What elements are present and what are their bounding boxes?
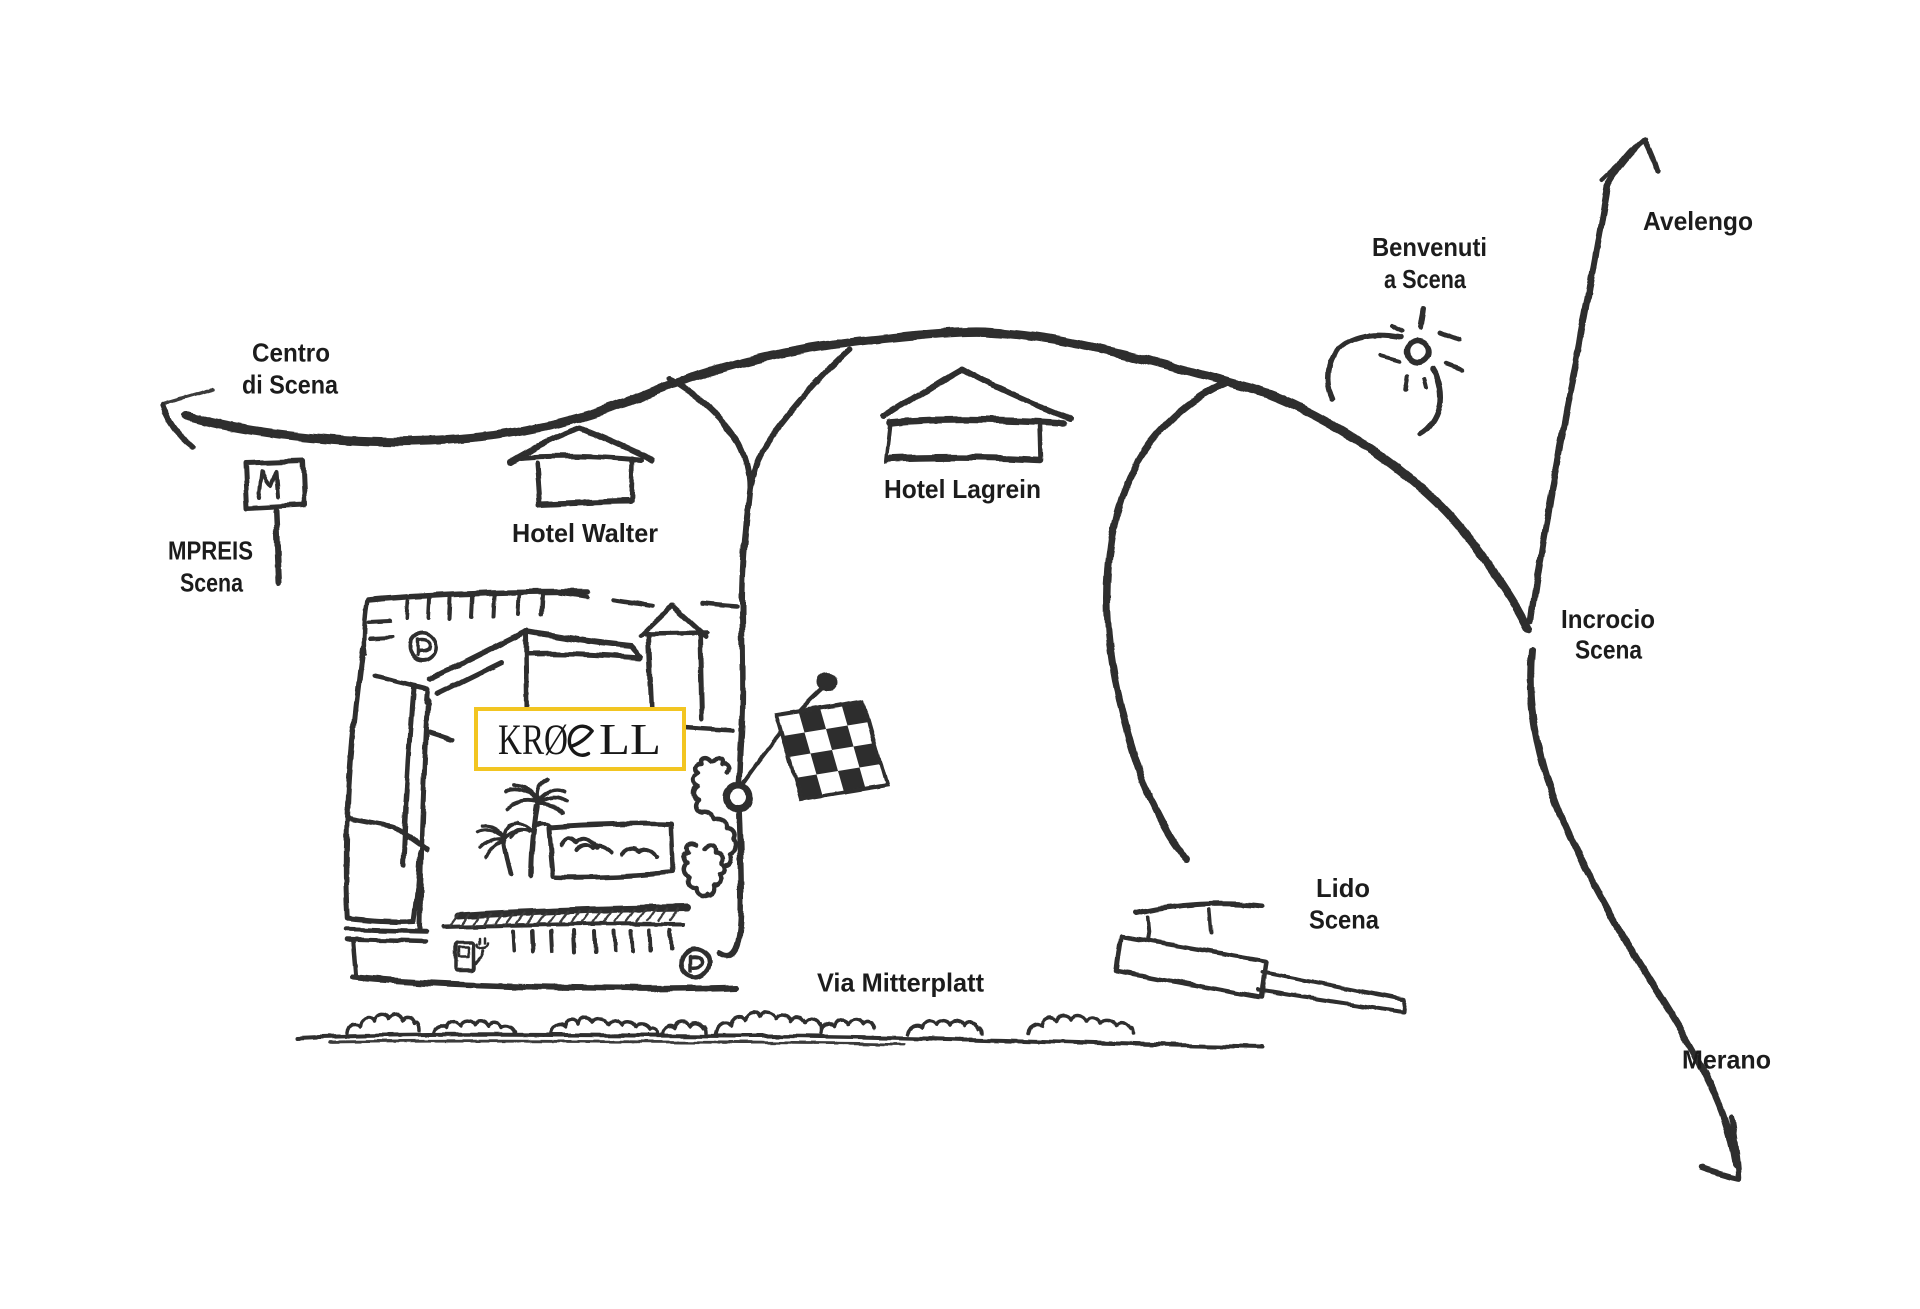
svg-text:a Scena: a Scena — [1384, 264, 1466, 294]
svg-text:Benvenuti: Benvenuti — [1372, 232, 1487, 262]
svg-text:Avelengo: Avelengo — [1643, 206, 1753, 236]
svg-text:Scena: Scena — [1575, 635, 1642, 665]
svg-text:Merano: Merano — [1682, 1045, 1771, 1075]
svg-text:Scena: Scena — [180, 568, 243, 598]
svg-text:Hotel Lagrein: Hotel Lagrein — [884, 474, 1041, 504]
svg-text:Via Mitterplatt: Via Mitterplatt — [817, 968, 984, 998]
svg-text:MPREIS: MPREIS — [168, 536, 253, 566]
svg-text:Lido: Lido — [1316, 873, 1370, 903]
svg-text:LL: LL — [599, 715, 661, 764]
svg-text:Incrocio: Incrocio — [1561, 604, 1655, 634]
svg-text:di Scena: di Scena — [242, 370, 338, 400]
svg-text:Scena: Scena — [1309, 905, 1379, 935]
svg-text:Hotel Walter: Hotel Walter — [512, 518, 658, 548]
svg-text:KRØ: KRØ — [498, 717, 568, 764]
svg-text:Centro: Centro — [252, 338, 330, 368]
